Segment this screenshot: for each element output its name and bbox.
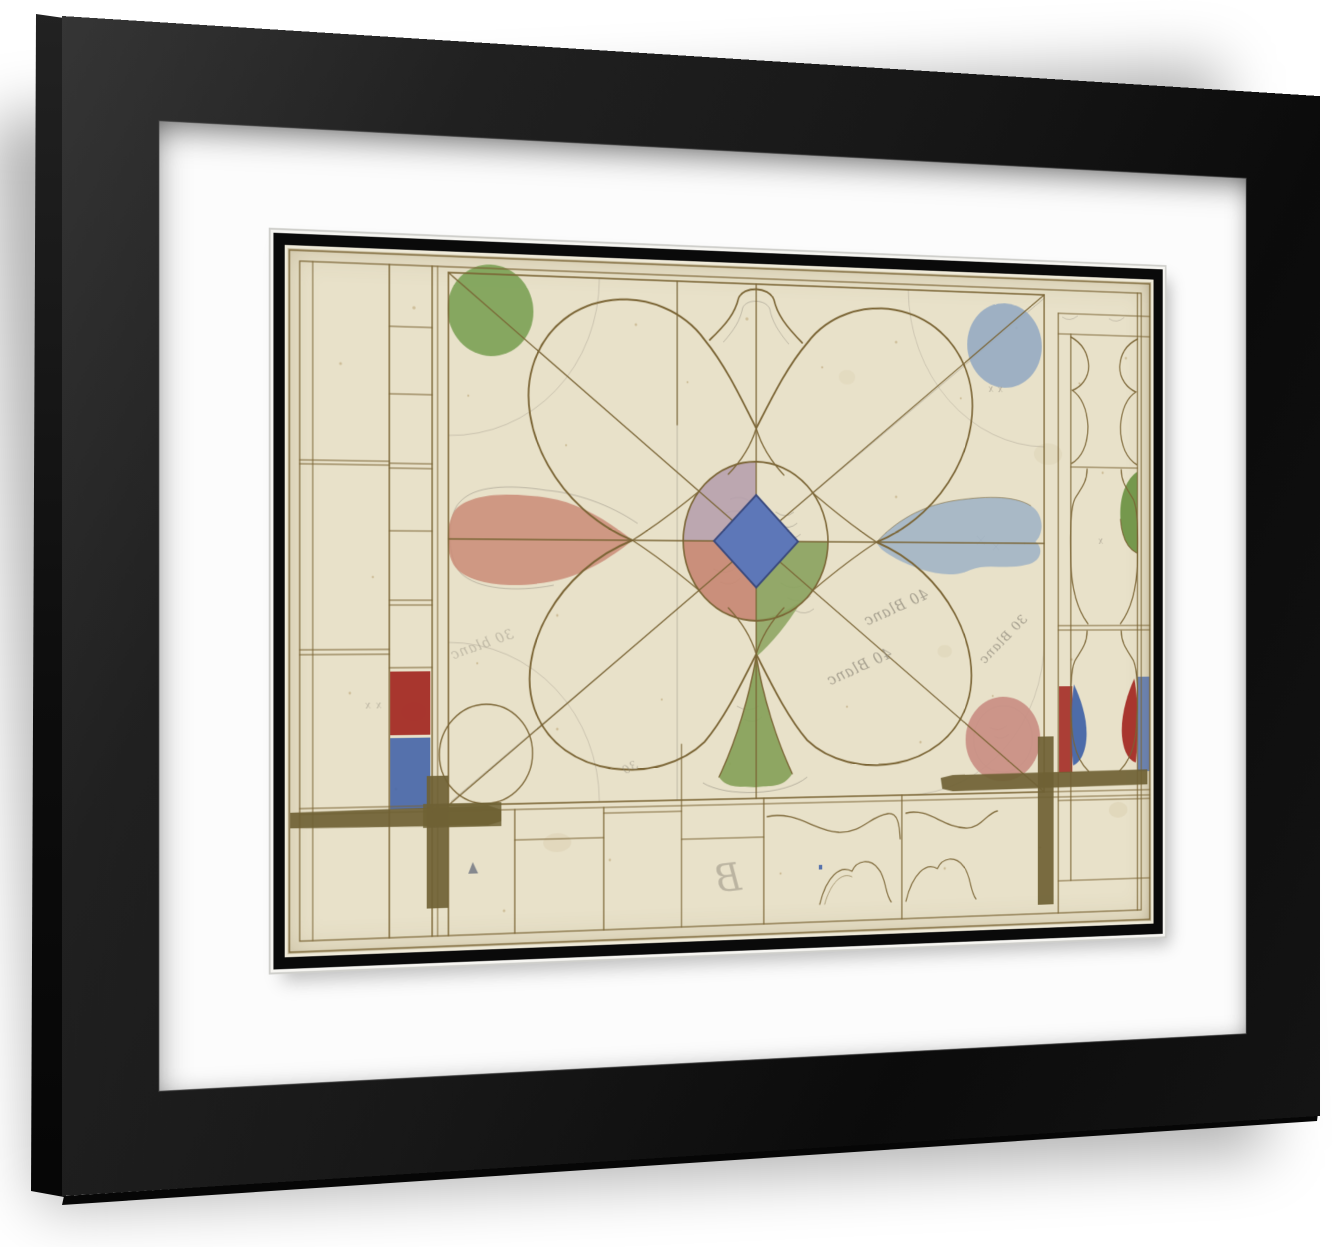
pink-glass-circle (966, 696, 1041, 782)
artwork-drawing (285, 245, 1154, 957)
pencil-mark-xx-2: x x (364, 698, 381, 711)
column-baluster-1 (1071, 337, 1138, 465)
ladder-red-block (390, 671, 430, 735)
outline-circle-bottom-left (439, 704, 532, 805)
picture-frame: 40 Blanc 40 Blanc 30 Blanc 30 blanc 30 B… (62, 16, 1320, 1196)
blue-blob (877, 496, 1042, 575)
column-red-drop (1122, 678, 1138, 762)
column-blue-drop (1071, 684, 1086, 765)
green-glass-circle (448, 263, 534, 357)
pencil-mark-x: x (1098, 535, 1104, 547)
wave-scroll-1 (767, 812, 900, 842)
gray-triangle-mark (468, 862, 478, 874)
annotation-letter-b: B (712, 854, 743, 903)
wave-arches-2 (906, 858, 976, 901)
pencil-mark-xx-1: x x (988, 382, 1003, 394)
stained-glass-design-artwork: 40 Blanc 40 Blanc 30 Blanc 30 blanc 30 B… (273, 233, 1162, 970)
column-green-drop (1120, 471, 1137, 553)
ladder-blue-block (390, 738, 430, 810)
wave-scroll-2 (906, 810, 998, 830)
product-photo-stage: 40 Blanc 40 Blanc 30 Blanc 30 blanc 30 B… (0, 0, 1340, 1247)
column-blue-strip (1137, 677, 1149, 772)
blue-glass-circle (967, 302, 1042, 389)
wave-arches-1 (820, 861, 892, 905)
